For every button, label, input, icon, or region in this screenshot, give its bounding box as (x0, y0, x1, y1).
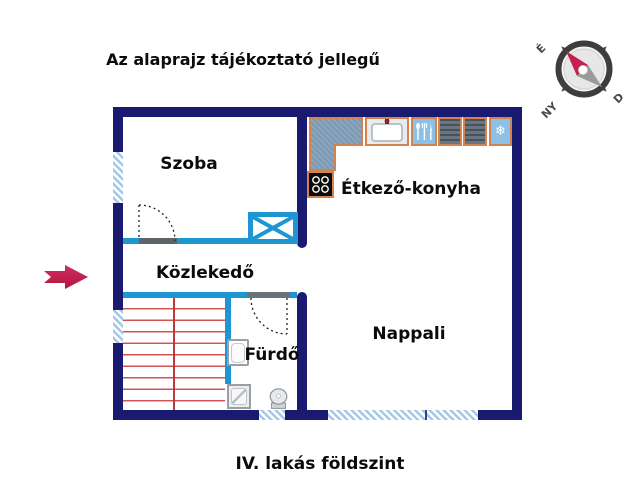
window-hatch-bottom-1 (259, 410, 285, 420)
door-arc-szoba (139, 205, 175, 241)
compass-south-label: D (611, 90, 627, 106)
kitchen-sink-icon (365, 117, 409, 146)
kitchen-cabinet-1 (438, 117, 462, 146)
partition-szoba (177, 238, 252, 244)
partition-szoba (123, 238, 139, 244)
exterior-wall-bottom (478, 410, 522, 420)
exterior-wall-left (113, 343, 123, 420)
snowflake-glyph: ❄ (495, 124, 506, 139)
room-label-nappali: Nappali (339, 324, 479, 344)
room-label-furdo: Fürdő (232, 345, 312, 365)
exterior-wall-bottom (285, 410, 328, 420)
compass-north-label: É (534, 42, 549, 57)
x-glyph (253, 217, 293, 239)
room-label-kozlekedo: Közlekedő (125, 263, 285, 283)
dishwasher-icon (411, 117, 437, 146)
floor-caption: IV. lakás földszint (190, 454, 450, 474)
door-sill-furdo (247, 292, 290, 298)
kitchen-cabinet-2 (463, 117, 487, 146)
exterior-wall-bottom (113, 410, 259, 420)
room-label-szoba: Szoba (119, 154, 259, 174)
window-divider (425, 410, 427, 420)
freezer-icon: ❄ (489, 117, 512, 146)
entrance-arrow-icon (44, 263, 90, 291)
compass-icon: É NY D (530, 18, 640, 128)
compass-west-label: NY (539, 99, 561, 121)
window-hatch-bottom-2 (328, 410, 478, 420)
door-sill-szoba (139, 238, 177, 244)
shower-icon (227, 384, 251, 409)
exterior-wall-left (113, 203, 123, 310)
floorplan-disclaimer: Az alaprajz tájékoztató jellegű (83, 50, 403, 69)
window-x-symbol (248, 212, 298, 244)
partition-corridor (290, 292, 297, 298)
exterior-wall-left (113, 107, 123, 152)
stair-center-line (173, 298, 175, 410)
toilet-icon (268, 388, 289, 409)
door-arc-furdo (251, 298, 287, 334)
stairs (123, 298, 225, 410)
room-label-etkezo-konyha: Étkező-konyha (321, 179, 501, 199)
interior-wall-vertical-upper (297, 107, 307, 248)
floorplan: Az alaprajz tájékoztató jellegű IV. laká… (0, 0, 640, 501)
exterior-wall-right (512, 107, 522, 420)
exterior-wall-top (113, 107, 522, 117)
window-hatch-left-2 (113, 310, 123, 343)
